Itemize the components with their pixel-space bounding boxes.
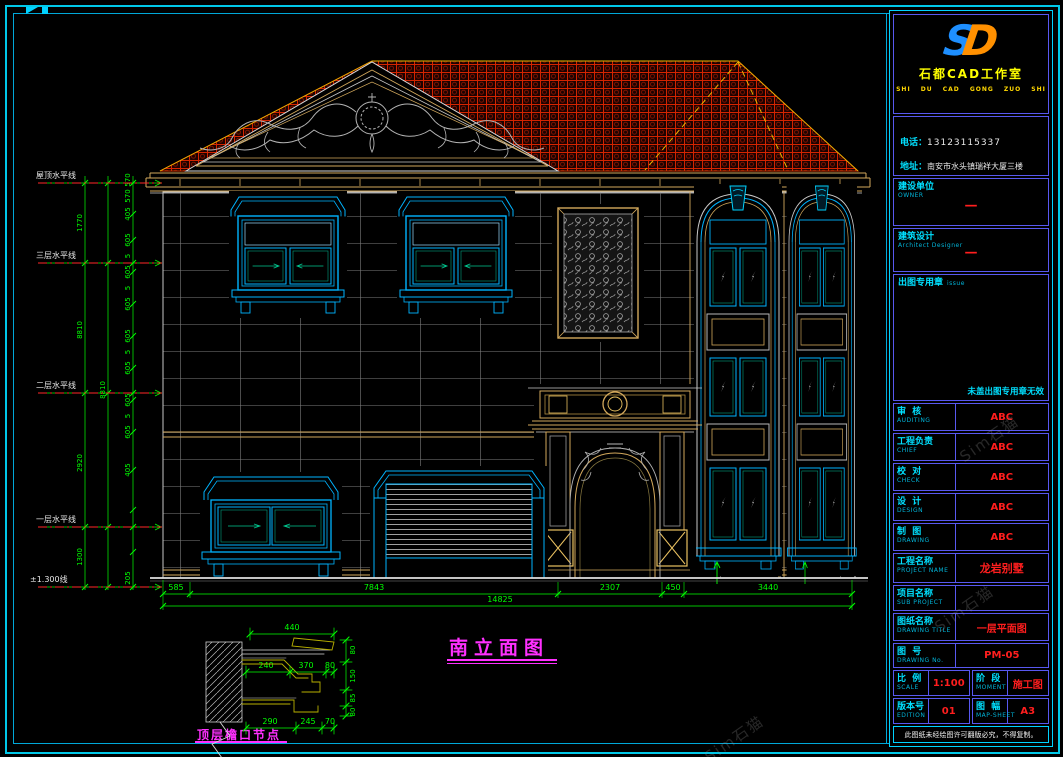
arched-window-right: [787, 184, 857, 584]
seal-note: 未盖出图专用章无效: [967, 385, 1044, 397]
owner-section: 建设单位OWNER —: [893, 178, 1049, 226]
phone-value: 13123115337: [927, 138, 1001, 148]
bottom-dimensions: [160, 580, 855, 610]
row-label-en: DESIGN: [897, 507, 952, 514]
row-label-cn: 工程名称: [897, 557, 952, 567]
row-label-en: EDITION: [897, 712, 925, 719]
company-pinyin: SHI DU CAD GONG ZUO SHI: [894, 86, 1048, 93]
row-label-cn: 设 计: [897, 497, 952, 507]
ground-floor-window: [200, 472, 342, 578]
cornice-detail: [206, 628, 352, 757]
designer-label-cn: 建筑设计: [898, 232, 963, 242]
title-block: SD 石都CAD工作室 SHI DU CAD GONG ZUO SHI 电话：1…: [889, 10, 1053, 747]
logo-letter-d: D: [960, 19, 1001, 63]
row-label-cn: 图 号: [897, 647, 952, 657]
row-label-en: CHIEF: [897, 447, 952, 454]
garage-door: [370, 466, 548, 578]
seal-label-cn: 出图专用章: [898, 278, 943, 288]
owner-label-cn: 建设单位: [898, 182, 934, 192]
drawing-no-value: PM-05: [984, 650, 1019, 661]
level-centerlines: [38, 183, 162, 587]
phone-label: 电话：: [900, 138, 927, 148]
left-dimensions: [38, 176, 162, 590]
designer-value: —: [965, 246, 978, 261]
project-name-value: 龙岩别墅: [980, 560, 1024, 576]
row-label-cn: 版本号: [897, 702, 925, 712]
edition-sheet-row: 版本号EDITION 01 图 幅MAP-SHEET A3: [892, 697, 1050, 725]
check-row: 校 对CHECK ABC: [893, 463, 1049, 491]
row-label-en: MOMENT: [976, 684, 1004, 691]
row-label-en: PROJECT NAME: [897, 567, 952, 574]
cad-drawing-sheet: 屋顶水平线 三层水平线 二层水平线 一层水平线 ±1.300线 585 7843…: [0, 0, 1063, 757]
row-label-en: AUDITING: [897, 417, 952, 424]
row-value: ABC: [990, 472, 1013, 483]
design-row: 设 计DESIGN ABC: [893, 493, 1049, 521]
row-label-en: DRAWING No.: [897, 657, 952, 664]
row-value: ABC: [990, 502, 1013, 513]
row-label-en: CHECK: [897, 477, 952, 484]
drawing-no-row: 图 号DRAWING No. PM-05: [893, 643, 1049, 668]
row-label-cn: 审 核: [897, 407, 952, 417]
company-logo-section: SD 石都CAD工作室 SHI DU CAD GONG ZUO SHI: [893, 14, 1049, 114]
designer-section: 建筑设计Architect Designer —: [893, 228, 1049, 272]
drawing-title-value: 一层平面图: [977, 620, 1027, 635]
row-label-cn: 校 对: [897, 467, 952, 477]
stage-value: 施工图: [1013, 676, 1043, 691]
drawing-title-row: 图纸名称DRAWING TITLE 一层平面图: [893, 613, 1049, 641]
address-label: 地址：: [900, 162, 927, 172]
address-line: 地址：南安市水头镇瑞祥大厦三楼: [900, 154, 1042, 173]
third-floor-window-left: [229, 191, 347, 318]
scale-value: 1:100: [933, 678, 965, 689]
scale-stage-row: 比 例SCALE 1:100 阶 段MOMENT 施工图: [892, 669, 1050, 697]
row-label-cn: 项目名称: [897, 589, 952, 599]
designer-label-en: Architect Designer: [898, 242, 963, 249]
seal-section: 出图专用章issue 未盖出图专用章无效: [893, 274, 1049, 401]
arched-window-left: [694, 184, 782, 584]
phone-line: 电话：13123115337: [900, 130, 1042, 149]
row-label-cn: 制 图: [897, 527, 952, 537]
row-label-cn: 工程负责: [897, 437, 952, 447]
row-label-cn: 图 幅: [976, 702, 1004, 712]
map-sheet-cell: 图 幅MAP-SHEET A3: [972, 698, 1049, 724]
owner-value: —: [965, 198, 978, 213]
map-sheet-value: A3: [1020, 706, 1035, 717]
scale-cell: 比 例SCALE 1:100: [893, 670, 970, 696]
drawing-row: 制 图DRAWING ABC: [893, 523, 1049, 551]
contact-section: 电话：13123115337 地址：南安市水头镇瑞祥大厦三楼: [893, 116, 1049, 176]
edition-cell: 版本号EDITION 01: [893, 698, 970, 724]
third-floor-window-right: [397, 191, 515, 318]
row-label-cn: 阶 段: [976, 674, 1004, 684]
sd-logo: SD: [894, 19, 1048, 63]
row-label-en: DRAWING: [897, 537, 952, 544]
corner-mark: [26, 7, 48, 14]
row-value: ABC: [990, 532, 1013, 543]
copyright-note: 此图纸未经绘图许可翻版必究，不得复制。: [893, 726, 1049, 743]
row-label-en: MAP-SHEET: [976, 712, 1004, 719]
company-name: 石都CAD工作室: [894, 65, 1048, 82]
project-name-row: 工程名称PROJECT NAME 龙岩别墅: [893, 553, 1049, 583]
row-label-cn: 比 例: [897, 674, 925, 684]
edition-value: 01: [942, 706, 956, 717]
address-value: 南安市水头镇瑞祥大厦三楼: [927, 162, 1023, 171]
stage-cell: 阶 段MOMENT 施工图: [972, 670, 1049, 696]
copyright-note-text: 此图纸未经绘图许可翻版必究，不得复制。: [905, 730, 1038, 740]
row-label-en: SUB PROJECT: [897, 599, 952, 606]
carved-panel: [552, 204, 644, 342]
seal-label-en: issue: [947, 280, 965, 287]
auditing-row: 审 核AUDITING ABC: [893, 403, 1049, 431]
row-label-en: SCALE: [897, 684, 925, 691]
owner-label-en: OWNER: [898, 192, 934, 199]
entrance-portal: [528, 384, 702, 578]
